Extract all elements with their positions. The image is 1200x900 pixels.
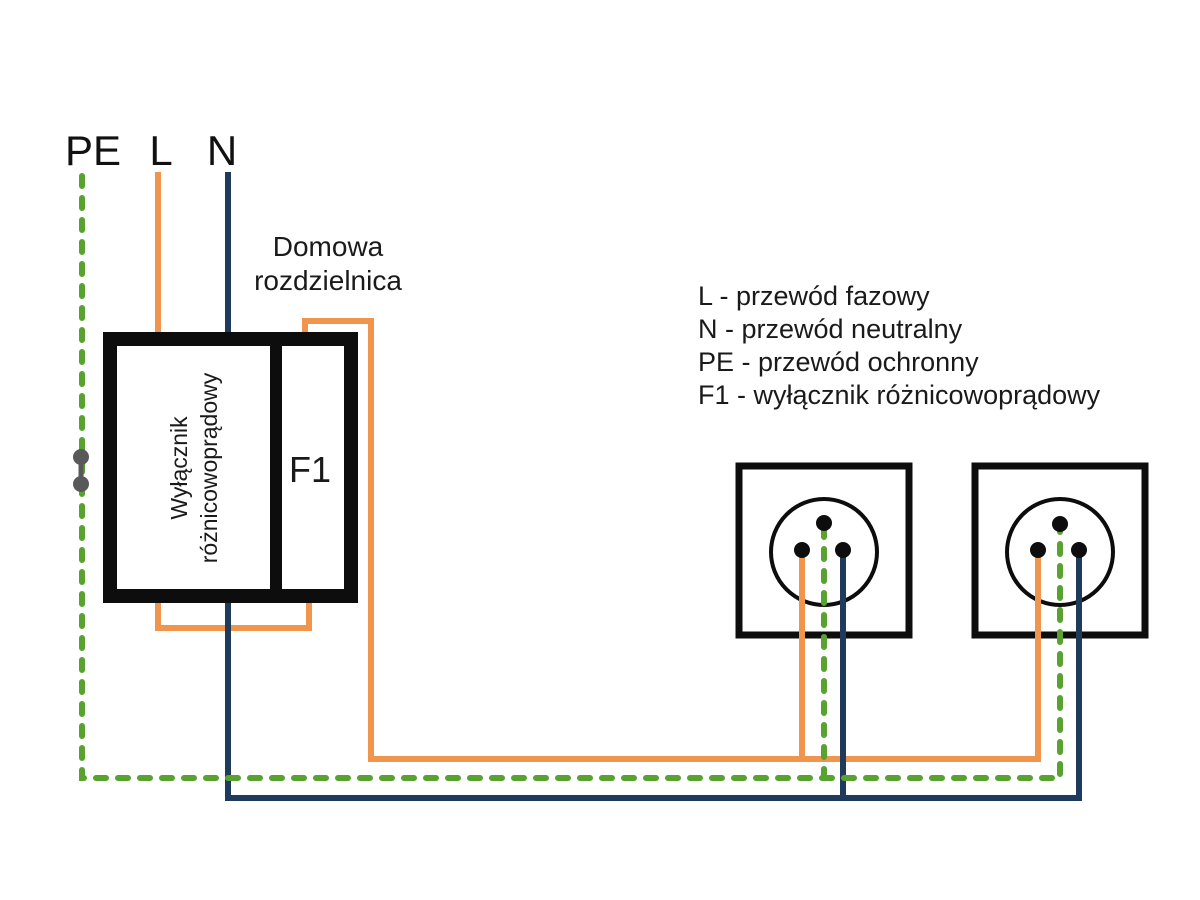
legend: L - przewód fazowy N - przewód neutralny… [698,280,1100,412]
pe-wire-label: PE [65,127,121,175]
f1-fuse-label: F1 [289,449,331,491]
legend-item-pe: PE - przewód ochronny [698,346,1100,379]
n-wire-label: N [207,127,237,175]
l-wire-rcd-to-f1-loop [158,602,309,628]
pe-junction-dot-top [73,449,89,465]
pe-junction-connector [73,449,89,492]
socket-1-earth-pin [816,515,832,531]
socket-1-right-pin [835,542,851,558]
socket-2-left-pin [1030,542,1046,558]
legend-item-n: N - przewód neutralny [698,313,1100,346]
socket-2-earth-pin [1052,516,1068,532]
socket-1-left-pin [794,542,810,558]
panel-title: Domowa rozdzielnica [254,230,402,298]
pe-junction-dot-bottom [73,476,89,492]
socket-2-right-pin [1071,542,1087,558]
legend-item-f1: F1 - wyłącznik różnicowoprądowy [698,379,1100,412]
l-wire-label: L [149,127,172,175]
legend-item-l: L - przewód fazowy [698,280,1100,313]
wiring-diagram: PE L N Domowa rozdzielnica Wyłącznik róż… [0,0,1200,900]
rcd-vertical-label: Wyłącznik różnicowoprądowy [164,373,224,563]
